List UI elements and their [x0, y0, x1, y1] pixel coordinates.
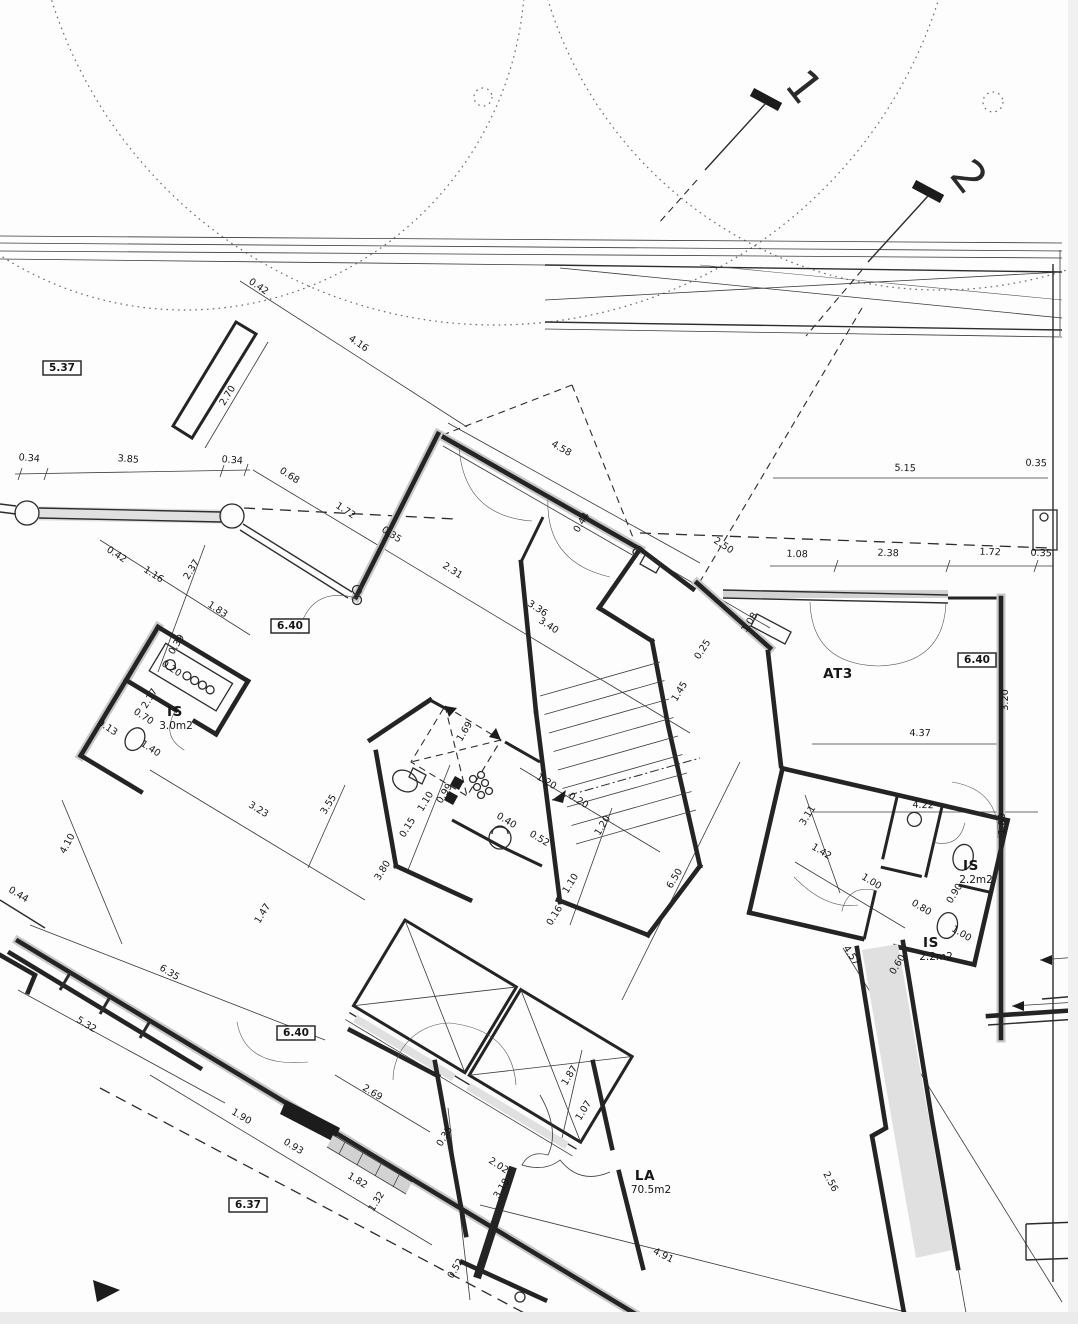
- floor-plan-drawing: 120.424.162.705.370.343.850.340.684.581.…: [0, 0, 1078, 1324]
- svg-text:IS: IS: [963, 858, 979, 874]
- svg-text:1.72: 1.72: [979, 547, 1001, 559]
- svg-text:4.91: 4.91: [651, 1246, 675, 1266]
- dimension-label: 0.34: [221, 454, 243, 467]
- dimension-label: 3.20: [1000, 689, 1011, 710]
- dimension-label: 4.22: [912, 800, 934, 812]
- elevator-shafts: [345, 920, 632, 1156]
- svg-text:1.32: 1.32: [367, 1190, 388, 1214]
- dimension-label: 0.13: [95, 717, 119, 738]
- dimension-label: 1.42: [809, 842, 833, 862]
- dimension-label: 4.10: [58, 832, 78, 856]
- dimension-label: 6.35: [157, 963, 181, 983]
- svg-text:1.69: 1.69: [455, 720, 476, 744]
- svg-text:4.37: 4.37: [909, 728, 931, 739]
- room-label: IS: [167, 704, 183, 720]
- dimension-label: 1.08: [786, 549, 808, 561]
- entry-arrow-icon: [1040, 955, 1052, 965]
- sink-taps-icon: [470, 772, 493, 799]
- dimension-label: 0.93: [281, 1137, 305, 1157]
- dimension-label: 2.70: [218, 384, 239, 408]
- svg-text:1: 1: [775, 60, 832, 113]
- room-label: AT3: [823, 666, 853, 682]
- elevation-mark: 6.40: [271, 619, 309, 633]
- svg-text:3.20: 3.20: [1000, 689, 1011, 710]
- dimension-label: 3.0m2: [159, 720, 193, 732]
- svg-text:3.23: 3.23: [246, 800, 270, 820]
- dimension-label: 1.82: [345, 1171, 369, 1191]
- stair-direction-arrow: [552, 790, 566, 803]
- dimension-label: 1.87: [560, 1064, 581, 1088]
- dimension-label: 0.20: [159, 658, 183, 679]
- dimension-label: 4.37: [909, 728, 931, 739]
- dimension-label: 1.00: [859, 872, 883, 892]
- svg-text:2.70: 2.70: [218, 384, 239, 408]
- south-east-corridor: [857, 942, 1078, 1324]
- svg-text:0.34: 0.34: [221, 454, 243, 467]
- svg-text:0.93: 0.93: [281, 1137, 305, 1157]
- svg-text:4.22: 4.22: [912, 800, 934, 812]
- dimension-label: 1.72: [979, 547, 1001, 559]
- dimension-label: 4.58: [549, 439, 573, 459]
- svg-text:6.35: 6.35: [157, 963, 181, 983]
- svg-text:IS: IS: [923, 935, 939, 951]
- dimension-label: 1.45: [670, 680, 691, 704]
- dimension-label: 3.36: [525, 598, 549, 619]
- svg-text:2.2m2: 2.2m2: [919, 951, 953, 963]
- svg-text:0.34: 0.34: [18, 452, 40, 465]
- dimension-label: 1.69: [455, 720, 476, 744]
- svg-text:0.80: 0.80: [909, 898, 933, 918]
- room-label: IS: [963, 858, 979, 874]
- dimension-label: 3.40: [536, 615, 560, 636]
- svg-text:LA: LA: [635, 1168, 655, 1184]
- svg-text:4.10: 4.10: [58, 832, 78, 856]
- room-label: LA: [635, 1168, 655, 1184]
- svg-text:5.15: 5.15: [894, 463, 916, 475]
- svg-text:3.80: 3.80: [373, 859, 394, 883]
- dimension-label: 1.32: [367, 1190, 388, 1214]
- svg-text:1.10: 1.10: [416, 790, 437, 814]
- scan-edge: [1068, 0, 1078, 1324]
- survey-point-icon: [983, 92, 1003, 112]
- survey-point-icon: [474, 88, 492, 106]
- svg-text:0.35: 0.35: [1030, 548, 1052, 560]
- dimension-label: 1.83: [205, 599, 229, 620]
- dimension-label: 70.5m2: [631, 1184, 671, 1196]
- svg-text:0.35: 0.35: [1025, 458, 1047, 470]
- dimension-label: 0.44: [6, 885, 30, 905]
- elevation-mark: 6.37: [229, 1198, 267, 1212]
- dimension-label: 3.80: [373, 859, 394, 883]
- svg-text:1.83: 1.83: [205, 599, 229, 620]
- elevation-mark: 6.40: [277, 1026, 315, 1040]
- section-marker-2: [698, 184, 942, 585]
- svg-text:2.2m2: 2.2m2: [959, 874, 993, 886]
- dimension-label: 0.80: [909, 898, 933, 918]
- svg-text:1.42: 1.42: [809, 842, 833, 862]
- north-arrow-fragment: [93, 1280, 120, 1302]
- svg-text:0.70: 0.70: [131, 706, 155, 727]
- svg-text:3.40: 3.40: [536, 615, 560, 636]
- svg-text:1.00: 1.00: [859, 872, 883, 892]
- svg-text:6.40: 6.40: [964, 654, 990, 666]
- svg-text:0.40: 0.40: [494, 811, 518, 831]
- elevation-mark: 6.40: [958, 653, 996, 667]
- dimension-label: 2.69: [360, 1083, 384, 1103]
- svg-text:0.16: 0.16: [545, 904, 566, 928]
- freeform-edge: [522, 1095, 610, 1176]
- central-bathrooms: [370, 700, 542, 900]
- svg-text:1.16: 1.16: [141, 564, 165, 585]
- svg-text:1.82: 1.82: [345, 1171, 369, 1191]
- dimension-label: 1.90: [229, 1107, 253, 1127]
- tree-canopy-circles: [0, 0, 1078, 325]
- dimension-label: 1.72: [333, 500, 357, 521]
- fence-railing: [0, 501, 352, 598]
- svg-text:1.40: 1.40: [138, 738, 162, 759]
- svg-text:1.72: 1.72: [333, 500, 357, 521]
- dimension-label: 1.47: [253, 902, 274, 926]
- dimension-label: 0.42: [104, 544, 128, 565]
- svg-text:0.44: 0.44: [6, 885, 30, 905]
- dimension-label: 2.38: [877, 548, 899, 560]
- svg-text:0.25: 0.25: [692, 638, 713, 662]
- dimension-label: 1.40: [138, 738, 162, 759]
- svg-text:0.42: 0.42: [104, 544, 128, 565]
- dimension-label: 0.25: [692, 638, 713, 662]
- svg-text:1.47: 1.47: [253, 902, 274, 926]
- dimension-label: 5.15: [894, 463, 916, 475]
- dimension-label: 1.10: [416, 790, 437, 814]
- svg-text:0.13: 0.13: [95, 717, 119, 738]
- svg-text:IS: IS: [167, 704, 183, 720]
- dimension-label: 2.02: [486, 1155, 510, 1176]
- scan-edge: [0, 1312, 1078, 1324]
- dimension-label: 3.23: [246, 800, 270, 820]
- sink-icon: [906, 811, 923, 828]
- svg-text:0.42: 0.42: [246, 276, 270, 297]
- svg-text:2.38: 2.38: [877, 548, 899, 560]
- svg-text:0.20: 0.20: [159, 658, 183, 679]
- svg-text:2: 2: [940, 150, 997, 203]
- door-swing-arcs: [298, 447, 610, 634]
- svg-text:1.10: 1.10: [561, 872, 582, 896]
- svg-text:1.90: 1.90: [229, 1107, 253, 1127]
- dimension-label: 4.91: [651, 1246, 675, 1266]
- svg-text:AT3: AT3: [823, 666, 853, 682]
- svg-text:1.45: 1.45: [670, 680, 691, 704]
- section-marker-1: [658, 92, 780, 224]
- planter-bar: [173, 322, 268, 448]
- svg-text:3.0m2: 3.0m2: [159, 720, 193, 732]
- svg-text:3.36: 3.36: [525, 598, 549, 619]
- svg-text:0.52: 0.52: [527, 829, 551, 849]
- svg-text:3.85: 3.85: [117, 453, 139, 466]
- dimension-label: 2.2m2: [919, 951, 953, 963]
- section-number: 2: [940, 150, 997, 203]
- dimension-label: 0.34: [18, 452, 40, 465]
- dimension-label: 1.07: [574, 1099, 595, 1123]
- dimension-label: 1.00: [949, 924, 973, 944]
- svg-text:70.5m2: 70.5m2: [631, 1184, 671, 1196]
- dimension-label: 2.50: [711, 535, 735, 556]
- dimension-label: 0.52: [527, 829, 551, 849]
- svg-text:6.37: 6.37: [235, 1199, 261, 1211]
- svg-text:5.37: 5.37: [49, 362, 75, 374]
- floor-plan-page: 120.424.162.705.370.343.850.340.684.581.…: [0, 0, 1078, 1324]
- svg-text:1.87: 1.87: [560, 1064, 581, 1088]
- svg-text:6.40: 6.40: [283, 1027, 309, 1039]
- svg-text:2.50: 2.50: [711, 535, 735, 556]
- dimension-label: 1.80: [997, 813, 1008, 834]
- dimension-label: 0.16: [545, 904, 566, 928]
- svg-text:1.08: 1.08: [786, 549, 808, 561]
- svg-text:6.40: 6.40: [277, 620, 303, 632]
- south-west-facade: [0, 900, 652, 1324]
- svg-text:4.58: 4.58: [549, 439, 573, 459]
- svg-text:1.00: 1.00: [949, 924, 973, 944]
- svg-text:1.07: 1.07: [574, 1099, 595, 1123]
- dimension-label: 0.35: [1030, 548, 1052, 560]
- svg-text:1.80: 1.80: [997, 813, 1008, 834]
- window-band: [327, 1135, 412, 1194]
- svg-text:2.02: 2.02: [486, 1155, 510, 1176]
- dimension-label: 0.35: [1025, 458, 1047, 470]
- dimension-label: 1.10: [561, 872, 582, 896]
- dimension-label: 0.68: [277, 465, 301, 486]
- dimension-label: 2.2m2: [959, 874, 993, 886]
- dimension-label: 0.42: [246, 276, 270, 297]
- svg-text:2.69: 2.69: [360, 1083, 384, 1103]
- room-label: IS: [923, 935, 939, 951]
- entry-arrow-icon: [1012, 1001, 1024, 1011]
- dimension-label: 0.15: [398, 816, 419, 840]
- svg-text:2.56: 2.56: [820, 1170, 840, 1194]
- dimension-label: 1.16: [141, 564, 165, 585]
- svg-text:2.31: 2.31: [440, 560, 464, 581]
- dimension-label: 2.56: [820, 1170, 840, 1194]
- dimension-label: 3.85: [117, 453, 139, 466]
- dimension-label: 2.31: [440, 560, 464, 581]
- elevation-mark: 5.37: [43, 361, 81, 375]
- svg-text:0.15: 0.15: [398, 816, 419, 840]
- dimension-label: 0.40: [494, 811, 518, 831]
- section-number: 1: [775, 60, 832, 113]
- dimension-label: 0.70: [131, 706, 155, 727]
- svg-text:0.68: 0.68: [277, 465, 301, 486]
- door-swing-arc: [794, 877, 858, 906]
